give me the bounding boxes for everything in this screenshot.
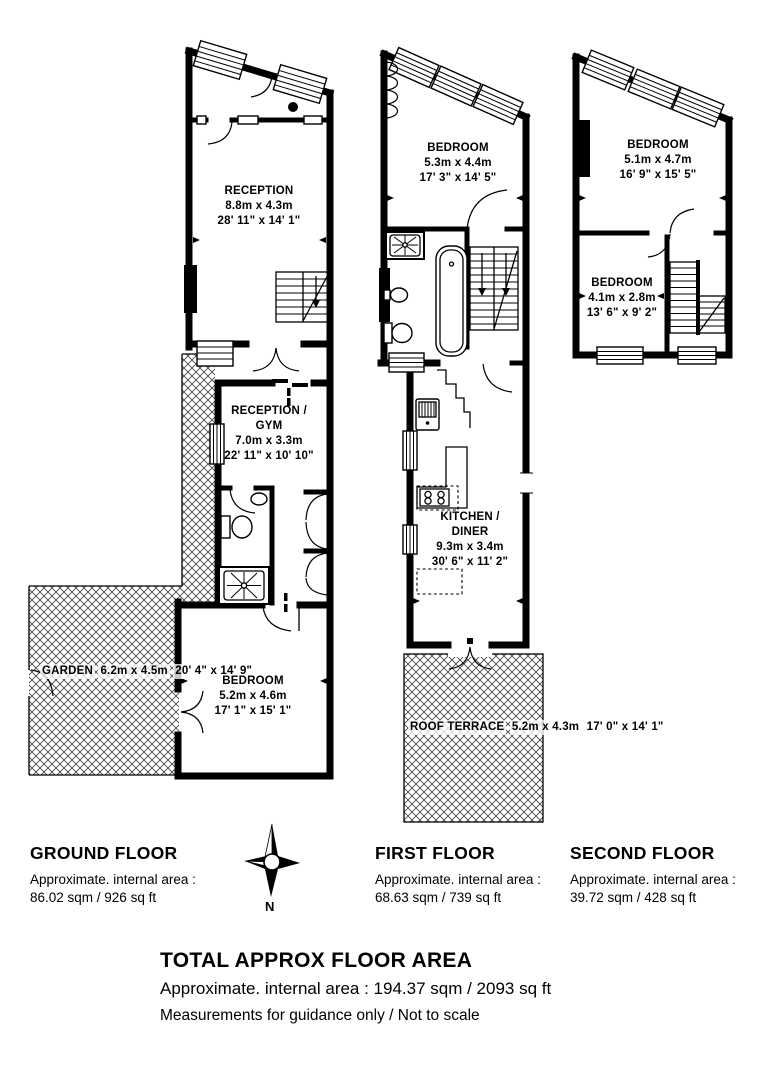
roof-terrace-hatch xyxy=(404,649,543,822)
room-name: KITCHEN / xyxy=(415,510,525,525)
floor-area-value: 68.63 sqm / 739 sq ft xyxy=(375,889,575,907)
window xyxy=(273,65,326,104)
total-title: TOTAL APPROX FLOOR AREA xyxy=(160,948,660,974)
room-dim-imperial: 17' 3" x 14' 5" xyxy=(398,171,518,186)
window xyxy=(403,431,417,470)
shower xyxy=(386,232,424,259)
room-dim-metric: 5.2m x 4.6m xyxy=(193,689,313,704)
window xyxy=(628,69,680,109)
room-dim-imperial: 16' 9" x 15' 5" xyxy=(598,168,718,183)
window xyxy=(520,473,533,493)
sliding-door xyxy=(272,379,308,406)
room-dim-imperial: 17' 1" x 15' 1" xyxy=(193,704,313,719)
floor-title: GROUND FLOOR xyxy=(30,843,260,864)
chimney-breast xyxy=(576,120,590,177)
door-arc xyxy=(670,209,694,233)
room-name: GYM xyxy=(214,419,324,434)
sink xyxy=(251,493,267,505)
window xyxy=(197,341,233,366)
room-name: GARDEN xyxy=(40,664,95,679)
room-name: RECEPTION / xyxy=(214,404,324,419)
ceiling-dot xyxy=(288,102,298,112)
room-label-ground-bedroom: BEDROOM 5.2m x 4.6m 17' 1" x 15' 1" xyxy=(193,674,313,719)
window xyxy=(193,41,246,80)
room-dim-imperial: 22' 11" x 10' 10" xyxy=(214,449,324,464)
room-label-second-bedroom-front: BEDROOM 5.1m x 4.7m 16' 9" x 15' 5" xyxy=(598,138,718,183)
floor-area-value: 86.02 sqm / 926 sq ft xyxy=(30,889,260,907)
window xyxy=(582,50,634,90)
room-dim-imperial: 13' 6" x 9' 2" xyxy=(562,306,682,321)
chimney-breast xyxy=(184,265,197,313)
room-dim-metric: 8.8m x 4.3m xyxy=(189,199,329,214)
door-arc xyxy=(253,348,276,371)
shower xyxy=(219,567,269,604)
window xyxy=(597,347,643,364)
room-name: DINER xyxy=(415,525,525,540)
room-label-second-bedroom-back: BEDROOM 4.1m x 2.8m 13' 6" x 9' 2" xyxy=(562,276,682,321)
floor-title: FIRST FLOOR xyxy=(375,843,575,864)
window xyxy=(473,85,523,125)
toilet xyxy=(384,323,412,343)
toilet-cistern xyxy=(221,516,230,538)
bathtub xyxy=(436,246,467,356)
door-arc xyxy=(276,348,299,371)
room-dim-metric: 4.1m x 2.8m xyxy=(562,291,682,306)
room-dim-metric: 5.3m x 4.4m xyxy=(398,156,518,171)
room-dim-imperial: 17' 0" x 14' 1" xyxy=(585,720,666,735)
room-label-first-bedroom: BEDROOM 5.3m x 4.4m 17' 3" x 14' 5" xyxy=(398,141,518,186)
room-label-kitchen-diner: KITCHEN / DINER 9.3m x 3.4m 30' 6" x 11'… xyxy=(415,510,525,570)
window xyxy=(431,66,481,106)
room-name: ROOF TERRACE xyxy=(408,720,506,735)
door-arc xyxy=(208,122,232,144)
stair-bulkhead xyxy=(437,370,470,428)
hob xyxy=(420,489,449,506)
window xyxy=(678,347,716,364)
room-name: BEDROOM xyxy=(562,276,682,291)
staircase xyxy=(276,272,330,322)
room-label-reception-gym: RECEPTION / GYM 7.0m x 3.3m 22' 11" x 10… xyxy=(214,404,324,464)
room-dim-imperial: 30' 6" x 11' 2" xyxy=(415,555,525,570)
room-label-reception: RECEPTION 8.8m x 4.3m 28' 11" x 14' 1" xyxy=(189,184,329,229)
room-name: BEDROOM xyxy=(193,674,313,689)
room-dim-metric: 5.1m x 4.7m xyxy=(598,153,718,168)
door-arc xyxy=(467,190,507,229)
door-arc xyxy=(251,76,272,97)
sink xyxy=(384,288,408,302)
room-dim-metric: 9.3m x 3.4m xyxy=(415,540,525,555)
floor-area-label: Approximate. internal area : xyxy=(30,871,260,889)
floor-area-label: Approximate. internal area : xyxy=(570,871,764,889)
room-label-roof-terrace: ROOF TERRACE 5.2m x 4.3m 17' 0" x 14' 1" xyxy=(408,720,538,735)
garden-hatch xyxy=(29,354,215,775)
room-dim-metric: 5.2m x 4.3m xyxy=(510,720,581,735)
boiler xyxy=(416,399,439,430)
first-floor-caption: FIRST FLOOR Approximate. internal area :… xyxy=(375,843,575,906)
total-area-block: TOTAL APPROX FLOOR AREA Approximate. int… xyxy=(160,948,660,1029)
window xyxy=(389,48,439,88)
ground-floor-caption: GROUND FLOOR Approximate. internal area … xyxy=(30,843,260,906)
island-unit xyxy=(417,569,462,594)
door-arc xyxy=(483,364,512,392)
room-dim-metric: 6.2m x 4.5m xyxy=(98,664,169,679)
second-floor-caption: SECOND FLOOR Approximate. internal area … xyxy=(570,843,764,906)
toilet xyxy=(232,516,252,538)
floor-area-label: Approximate. internal area : xyxy=(375,871,575,889)
wc xyxy=(221,489,267,538)
room-name: BEDROOM xyxy=(598,138,718,153)
staircase xyxy=(470,247,518,330)
floor-area-value: 39.72 sqm / 428 sq ft xyxy=(570,889,764,907)
room-label-garden: GARDEN 6.2m x 4.5m 20' 4" x 14' 9" xyxy=(40,664,166,679)
window xyxy=(389,353,424,372)
room-dim-metric: 7.0m x 3.3m xyxy=(214,434,324,449)
total-area-line: Approximate. internal area : 194.37 sqm … xyxy=(160,974,660,1003)
compass-north-label: N xyxy=(265,899,274,914)
floor-title: SECOND FLOOR xyxy=(570,843,764,864)
room-dim-imperial: 28' 11" x 14' 1" xyxy=(189,214,329,229)
total-disclaimer: Measurements for guidance only / Not to … xyxy=(160,1003,660,1029)
window xyxy=(672,87,724,127)
floorplan-page: RECEPTION 8.8m x 4.3m 28' 11" x 14' 1" R… xyxy=(0,0,764,1080)
room-name: RECEPTION xyxy=(189,184,329,199)
room-name: BEDROOM xyxy=(398,141,518,156)
